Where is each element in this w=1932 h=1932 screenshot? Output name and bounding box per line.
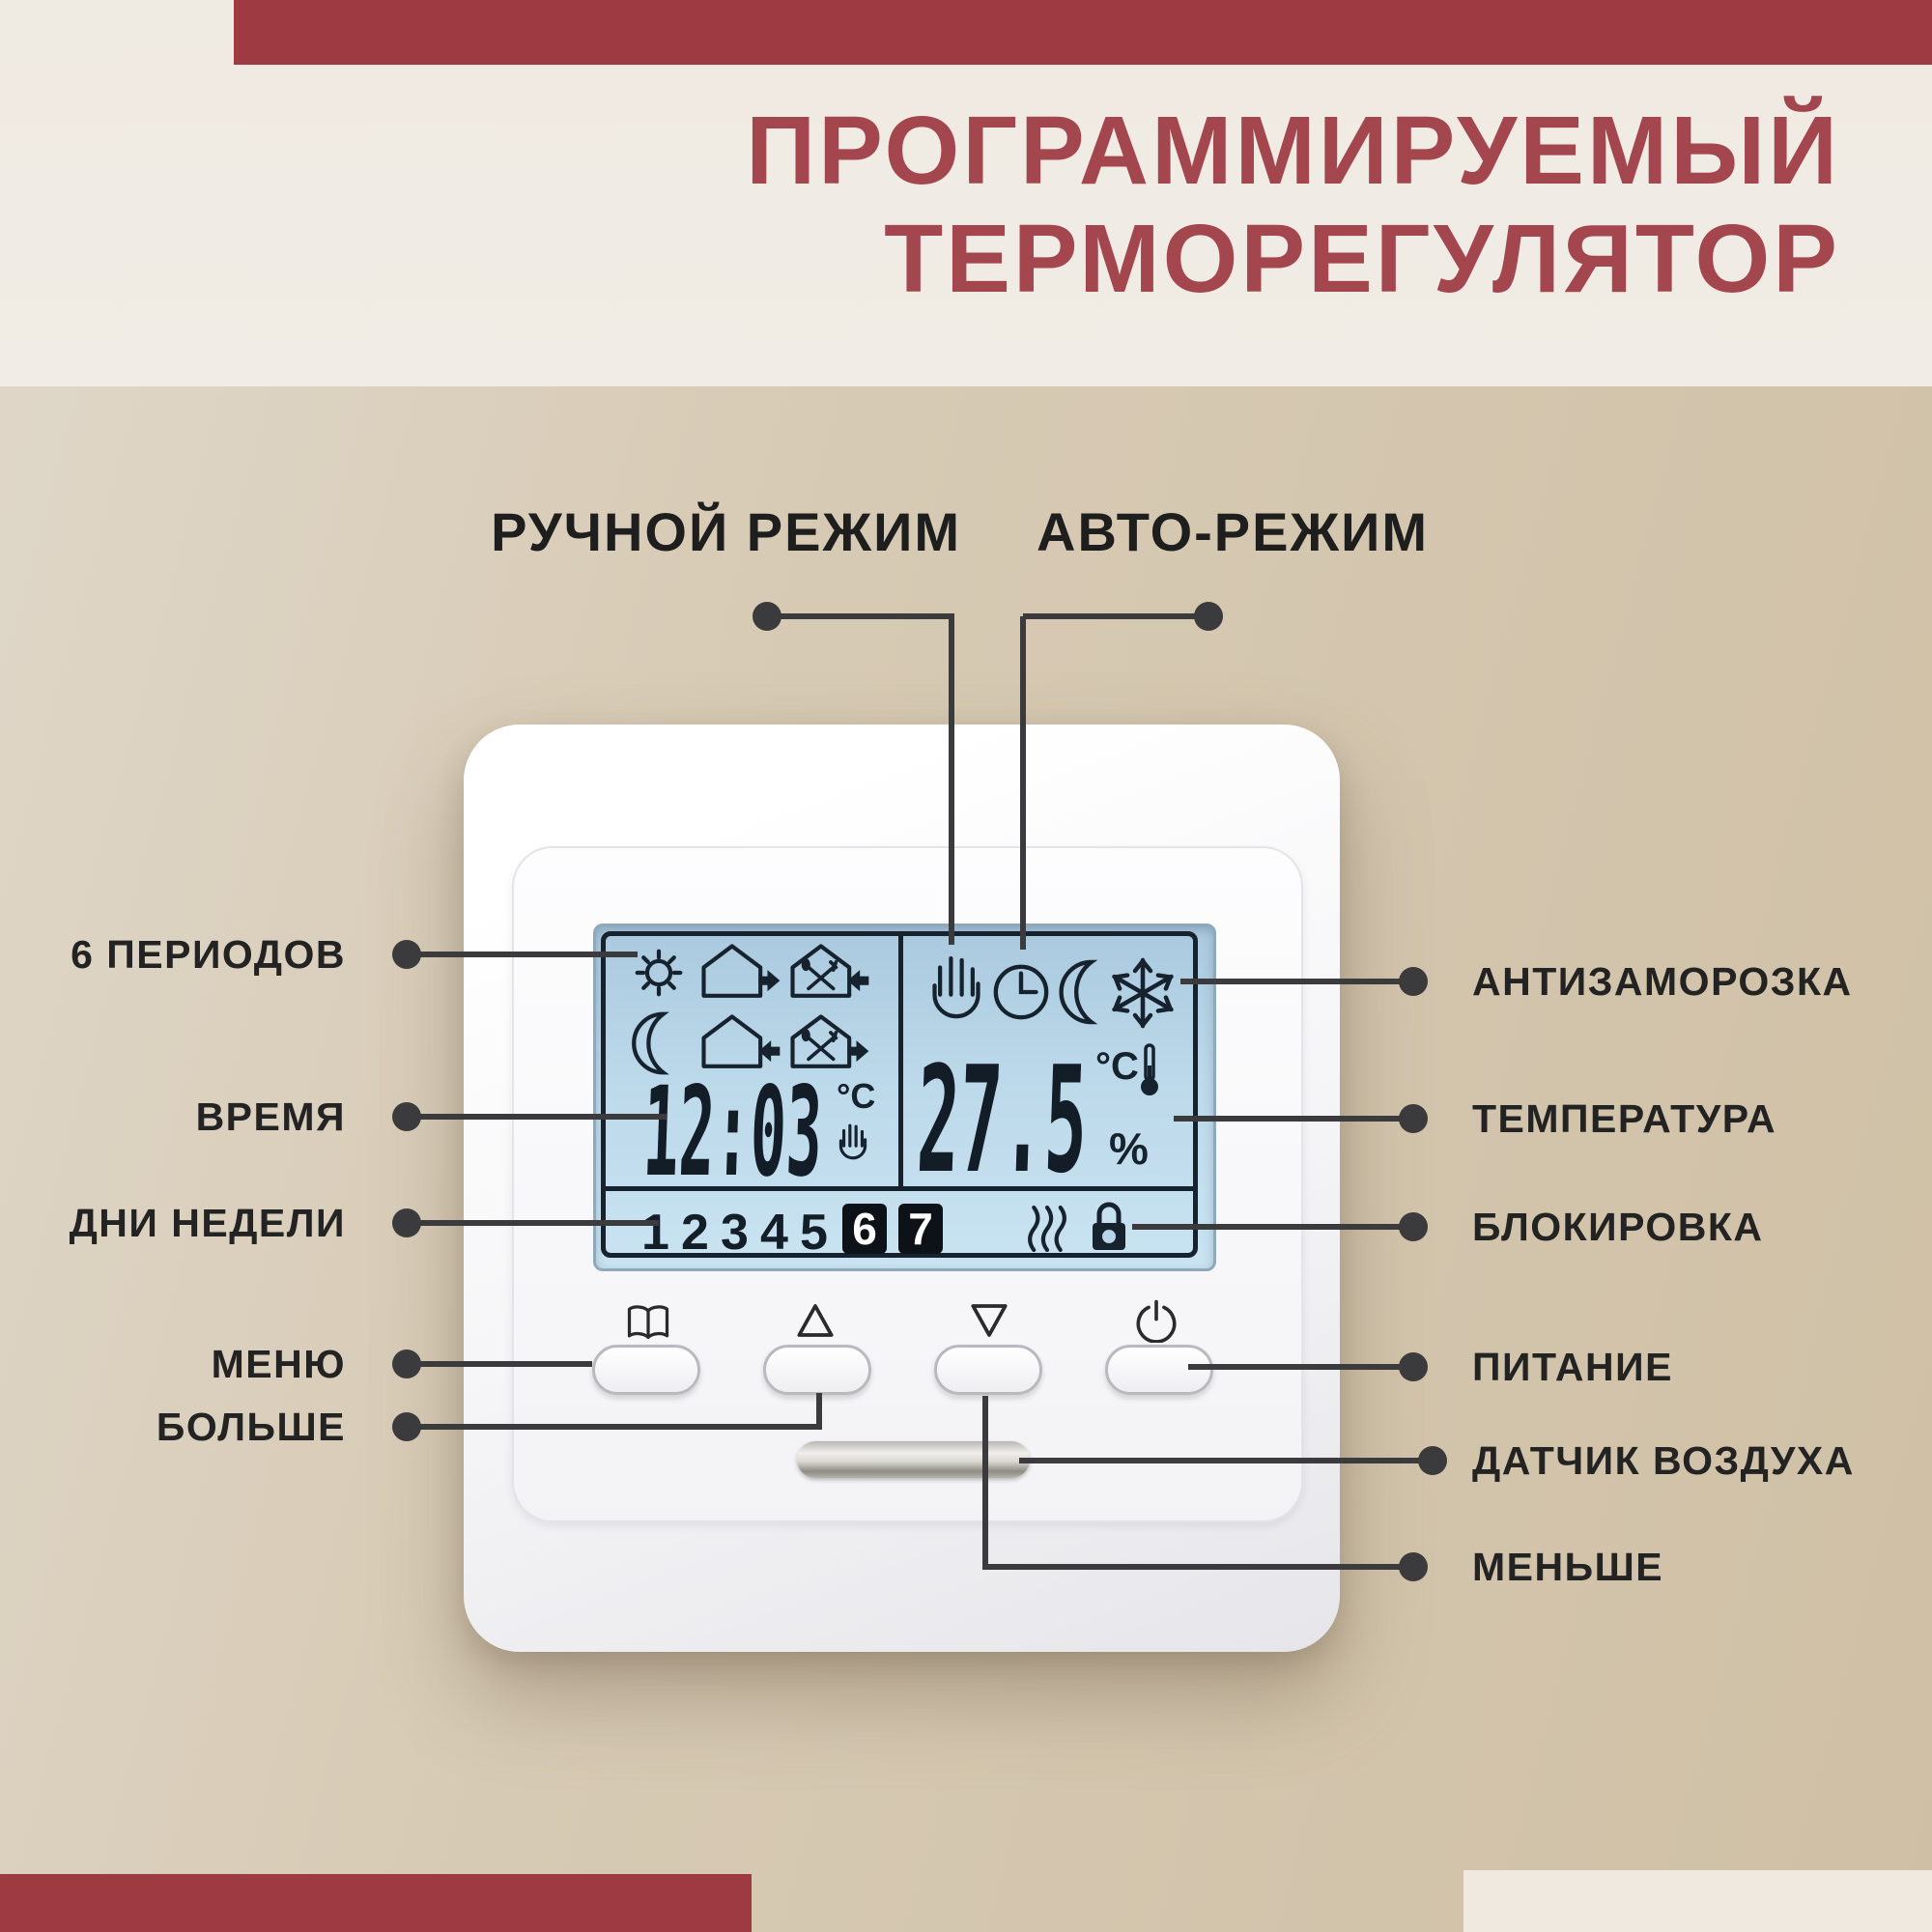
weekday-5: 5 bbox=[794, 1204, 834, 1262]
house-arrow-out-icon bbox=[698, 940, 783, 1004]
decrease-button[interactable] bbox=[934, 1345, 1042, 1395]
time-dot bbox=[392, 1102, 421, 1131]
arrow-up-icon bbox=[796, 1302, 835, 1339]
temperature-display: 27.5 bbox=[915, 1051, 1090, 1190]
air-sensor-slot bbox=[797, 1441, 1030, 1478]
increase-line-h bbox=[407, 1424, 822, 1430]
lock-dot bbox=[1399, 1212, 1428, 1241]
power-dot bbox=[1399, 1352, 1428, 1381]
increase-line-v bbox=[816, 1393, 822, 1430]
periods-line bbox=[407, 952, 638, 957]
weekday-6-active: 6 bbox=[842, 1204, 887, 1254]
increase-button[interactable] bbox=[763, 1345, 871, 1395]
manual-override-hand-icon bbox=[837, 1122, 869, 1163]
antifreeze-dot bbox=[1399, 967, 1428, 996]
weekdays-line bbox=[407, 1220, 659, 1226]
time-unit: °C bbox=[837, 1076, 875, 1117]
snowflake-icon bbox=[1104, 954, 1181, 1032]
label-power: ПИТАНИЕ bbox=[1472, 1344, 1673, 1390]
humidity-unit: % bbox=[1109, 1122, 1149, 1175]
sensor-line bbox=[1019, 1458, 1433, 1463]
page-title-line1: ПРОГРАММИРУЕМЫЙ bbox=[746, 97, 1840, 205]
menu-book-icon bbox=[623, 1302, 673, 1343]
menu-line bbox=[407, 1361, 592, 1367]
header-accent-bar bbox=[234, 0, 1932, 65]
lock-line bbox=[1132, 1224, 1413, 1230]
temperature-dot bbox=[1399, 1104, 1428, 1133]
thermometer-icon bbox=[1136, 1041, 1163, 1097]
arrow-down-icon bbox=[970, 1302, 1009, 1339]
menu-dot bbox=[392, 1350, 421, 1378]
temperature-line bbox=[1174, 1116, 1413, 1122]
weekday-7-active: 7 bbox=[898, 1204, 943, 1254]
infographic-canvas: ПРОГРАММИРУЕМЫЙ ТЕРМОРЕГУЛЯТОР РУЧНОЙ РЕ… bbox=[0, 0, 1932, 1932]
periods-dot bbox=[392, 940, 421, 969]
decrease-dot bbox=[1399, 1552, 1428, 1581]
increase-dot bbox=[392, 1412, 421, 1441]
temperature-unit: °C bbox=[1095, 1045, 1139, 1089]
label-increase: БОЛЬШЕ bbox=[156, 1404, 346, 1450]
antifreeze-line bbox=[1180, 979, 1413, 984]
decrease-line-v bbox=[982, 1396, 988, 1570]
weekday-3: 3 bbox=[715, 1204, 754, 1262]
decrease-line-h bbox=[985, 1564, 1413, 1570]
footer-accent-bar bbox=[0, 1874, 752, 1932]
lock-icon bbox=[1086, 1198, 1132, 1254]
label-temperature: ТЕМПЕРАТУРА bbox=[1472, 1095, 1776, 1142]
label-decrease: МЕНЬШЕ bbox=[1472, 1544, 1663, 1590]
heating-waves-icon bbox=[1026, 1204, 1068, 1254]
label-air-sensor: ДАТЧИК ВОЗДУХА bbox=[1472, 1437, 1855, 1484]
footer-cream-block bbox=[1463, 1870, 1932, 1932]
label-periods: 6 ПЕРИОДОВ bbox=[71, 931, 346, 978]
auto-mode-line-v bbox=[1020, 616, 1026, 950]
weekdays-row: 12345 bbox=[636, 1204, 834, 1262]
power-button[interactable] bbox=[1105, 1345, 1213, 1395]
moon-crescent-icon bbox=[1059, 958, 1105, 1026]
power-line bbox=[1188, 1364, 1413, 1370]
label-weekdays: ДНИ НЕДЕЛИ bbox=[70, 1200, 346, 1246]
manual-mode-dot bbox=[753, 602, 781, 631]
manual-mode-line-h bbox=[767, 613, 954, 619]
label-menu: МЕНЮ bbox=[212, 1341, 346, 1387]
time-display: 12:03 bbox=[641, 1074, 824, 1192]
weekday-2: 2 bbox=[675, 1204, 715, 1262]
label-lock: БЛОКИРОВКА bbox=[1472, 1204, 1764, 1250]
auto-mode-line-h bbox=[1023, 613, 1208, 619]
menu-button[interactable] bbox=[592, 1345, 700, 1395]
house-dining-arrow-in-icon bbox=[787, 940, 872, 1004]
weekday-4: 4 bbox=[754, 1204, 794, 1262]
manual-mode-line-v bbox=[949, 616, 954, 945]
label-antifreeze: АНТИЗАМОРОЗКА bbox=[1472, 958, 1853, 1005]
hand-icon bbox=[927, 952, 985, 1026]
label-time: ВРЕМЯ bbox=[196, 1094, 346, 1140]
lcd-divider-line bbox=[898, 931, 903, 1188]
clock-icon bbox=[991, 962, 1051, 1022]
sun-icon bbox=[634, 948, 684, 998]
manual-mode-label: РУЧНОЙ РЕЖИМ bbox=[382, 500, 961, 563]
auto-mode-dot bbox=[1194, 602, 1223, 631]
page-title: ПРОГРАММИРУЕМЫЙ ТЕРМОРЕГУЛЯТОР bbox=[746, 97, 1840, 313]
weekday-1: 1 bbox=[636, 1204, 675, 1262]
time-line bbox=[407, 1114, 667, 1120]
sensor-dot bbox=[1418, 1446, 1447, 1475]
power-icon bbox=[1134, 1298, 1179, 1343]
page-title-line2: ТЕРМОРЕГУЛЯТОР bbox=[746, 205, 1840, 313]
auto-mode-label: АВТО-РЕЖИМ bbox=[1037, 500, 1616, 563]
weekdays-dot bbox=[392, 1208, 421, 1237]
